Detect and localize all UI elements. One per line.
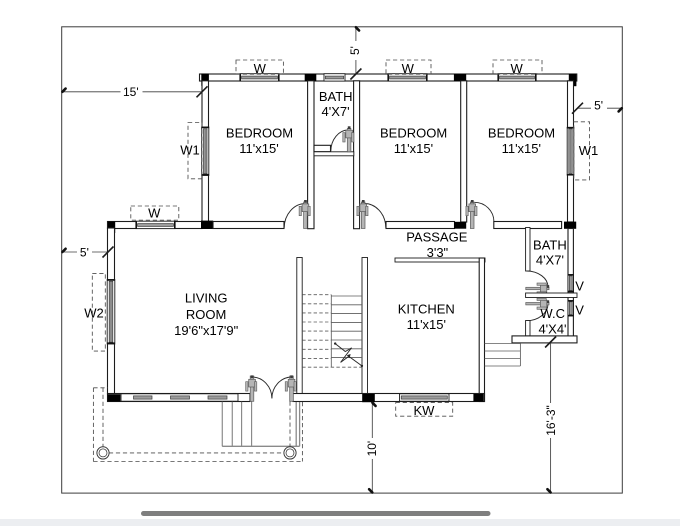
svg-text:5': 5' (594, 98, 603, 112)
svg-text:W.C: W.C (540, 306, 565, 321)
svg-text:10': 10' (365, 441, 379, 457)
svg-text:W: W (254, 61, 267, 76)
svg-text:PASSAGE: PASSAGE (406, 230, 468, 245)
svg-text:W1: W1 (579, 143, 599, 158)
svg-text:3'3": 3'3" (427, 245, 449, 260)
svg-text:W: W (402, 61, 415, 76)
svg-text:KW: KW (414, 403, 436, 418)
svg-text:W2: W2 (84, 306, 104, 321)
svg-text:19'6"x17'9": 19'6"x17'9" (174, 323, 238, 338)
svg-text:LIVING: LIVING (185, 291, 228, 306)
svg-text:4'X7': 4'X7' (536, 252, 564, 267)
svg-text:4'X7': 4'X7' (322, 104, 350, 119)
svg-text:5': 5' (348, 46, 362, 55)
svg-text:BATH: BATH (533, 238, 567, 253)
svg-text:11'x15': 11'x15' (239, 141, 278, 156)
svg-text:11'x15': 11'x15' (502, 141, 541, 156)
svg-text:5': 5' (80, 245, 89, 259)
svg-text:W1: W1 (180, 143, 200, 158)
svg-text:15': 15' (123, 85, 139, 99)
svg-text:BEDROOM: BEDROOM (380, 125, 447, 140)
svg-text:ROOM: ROOM (186, 307, 226, 322)
svg-text:V: V (575, 279, 584, 294)
svg-text:BATH: BATH (319, 89, 353, 104)
svg-text:11'x15': 11'x15' (407, 317, 446, 332)
svg-text:11'x15': 11'x15' (394, 141, 433, 156)
svg-text:W: W (510, 61, 523, 76)
svg-text:V: V (575, 302, 584, 317)
svg-text:BEDROOM: BEDROOM (226, 125, 293, 140)
svg-text:16'-3": 16'-3" (544, 405, 558, 436)
svg-text:4'X4': 4'X4' (538, 322, 566, 337)
svg-text:W: W (148, 206, 161, 221)
svg-text:BEDROOM: BEDROOM (488, 125, 555, 140)
svg-text:KITCHEN: KITCHEN (398, 301, 455, 316)
